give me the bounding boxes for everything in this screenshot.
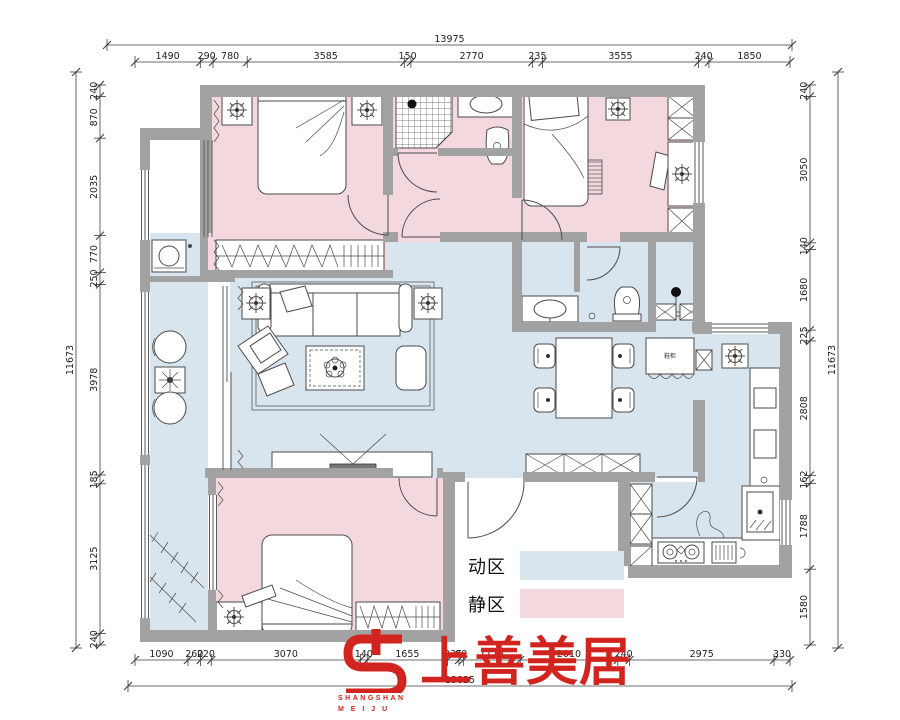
window — [140, 170, 150, 240]
svg-text:220: 220 — [197, 649, 215, 660]
lamp-icon — [224, 607, 244, 627]
sofa-arm — [399, 284, 412, 332]
balcony-slider — [223, 286, 231, 470]
svg-text:3555: 3555 — [608, 51, 632, 62]
svg-text:150: 150 — [399, 51, 417, 62]
svg-text:780: 780 — [221, 51, 239, 62]
svg-text:1580: 1580 — [799, 595, 810, 619]
balcony-chair — [154, 331, 186, 363]
zone-legend: 动区 静区 — [468, 551, 638, 627]
svg-text:1850: 1850 — [737, 51, 761, 62]
svg-text:225: 225 — [799, 326, 810, 344]
legend-row-active: 动区 — [468, 551, 638, 580]
floor-plan-drawing: 鞋柜 — [0, 0, 900, 720]
svg-text:240: 240 — [89, 630, 100, 648]
dining-chair — [613, 344, 634, 368]
logo-mark — [336, 629, 416, 693]
svg-text:11673: 11673 — [827, 345, 838, 375]
svg-text:2975: 2975 — [690, 649, 714, 660]
legend-swatch-quiet — [520, 589, 624, 618]
svg-text:330: 330 — [773, 649, 791, 660]
brand-logo: SHANGSHAN M E I J U 上善美居 — [336, 629, 626, 720]
dining-chair — [613, 388, 634, 412]
washing-machine — [152, 240, 186, 272]
svg-text:770: 770 — [89, 245, 100, 263]
window — [208, 495, 217, 590]
window — [712, 322, 768, 334]
svg-text:2035: 2035 — [89, 175, 100, 199]
svg-text:185: 185 — [89, 470, 100, 488]
svg-text:235: 235 — [528, 51, 546, 62]
lamp-icon — [246, 293, 266, 313]
logo-text-cn: 上善美居 — [420, 629, 632, 697]
svg-text:1788: 1788 — [799, 514, 810, 538]
balcony-chair — [154, 392, 186, 424]
dining-chair — [534, 344, 555, 368]
svg-text:11673: 11673 — [65, 345, 76, 375]
side-counter — [750, 368, 780, 486]
svg-text:1090: 1090 — [149, 649, 173, 660]
front-door — [468, 482, 524, 538]
shower-drain — [408, 100, 417, 109]
svg-text:2770: 2770 — [460, 51, 484, 62]
window — [693, 142, 705, 203]
legend-label-active: 动区 — [468, 553, 520, 579]
lamp-icon — [357, 100, 377, 120]
svg-text:1680: 1680 — [799, 278, 810, 302]
svg-text:3978: 3978 — [89, 368, 100, 392]
dining-table — [556, 338, 612, 418]
svg-text:140: 140 — [799, 237, 810, 255]
svg-text:290: 290 — [198, 51, 216, 62]
window — [140, 292, 150, 455]
svg-text:240: 240 — [89, 82, 100, 100]
svg-text:870: 870 — [89, 108, 100, 126]
floor-plan-page: 鞋柜 — [0, 0, 900, 720]
legend-row-quiet: 静区 — [468, 589, 638, 618]
plant-icon — [159, 369, 181, 391]
toilet — [614, 287, 639, 316]
window — [780, 500, 792, 545]
toilet — [486, 127, 509, 164]
svg-text:240: 240 — [695, 51, 713, 62]
utility-furniture — [152, 240, 192, 272]
side-table — [396, 346, 426, 390]
shoe-cabinet-label: 鞋柜 — [664, 352, 676, 360]
lamp-icon — [227, 100, 247, 120]
svg-text:1490: 1490 — [156, 51, 180, 62]
double-bed — [262, 535, 352, 635]
lamp-icon — [672, 164, 692, 184]
logo-text-en-2: M E I J U — [338, 706, 390, 713]
logo-text-en-1: SHANGSHAN — [338, 695, 406, 702]
svg-text:13975: 13975 — [434, 34, 464, 45]
svg-text:240: 240 — [799, 82, 810, 100]
svg-text:3125: 3125 — [89, 547, 100, 571]
lamp-icon — [418, 293, 438, 313]
svg-text:250: 250 — [89, 269, 100, 287]
dining-chair — [534, 388, 555, 412]
svg-text:3585: 3585 — [314, 51, 338, 62]
svg-text:3050: 3050 — [799, 158, 810, 182]
window — [140, 465, 150, 618]
svg-text:162: 162 — [799, 470, 810, 488]
svg-text:2808: 2808 — [799, 396, 810, 420]
lamp-icon — [608, 99, 628, 119]
svg-text:3070: 3070 — [274, 649, 298, 660]
legend-swatch-active — [520, 551, 624, 580]
bedside-runner — [588, 160, 602, 194]
legend-label-quiet: 静区 — [468, 591, 520, 617]
